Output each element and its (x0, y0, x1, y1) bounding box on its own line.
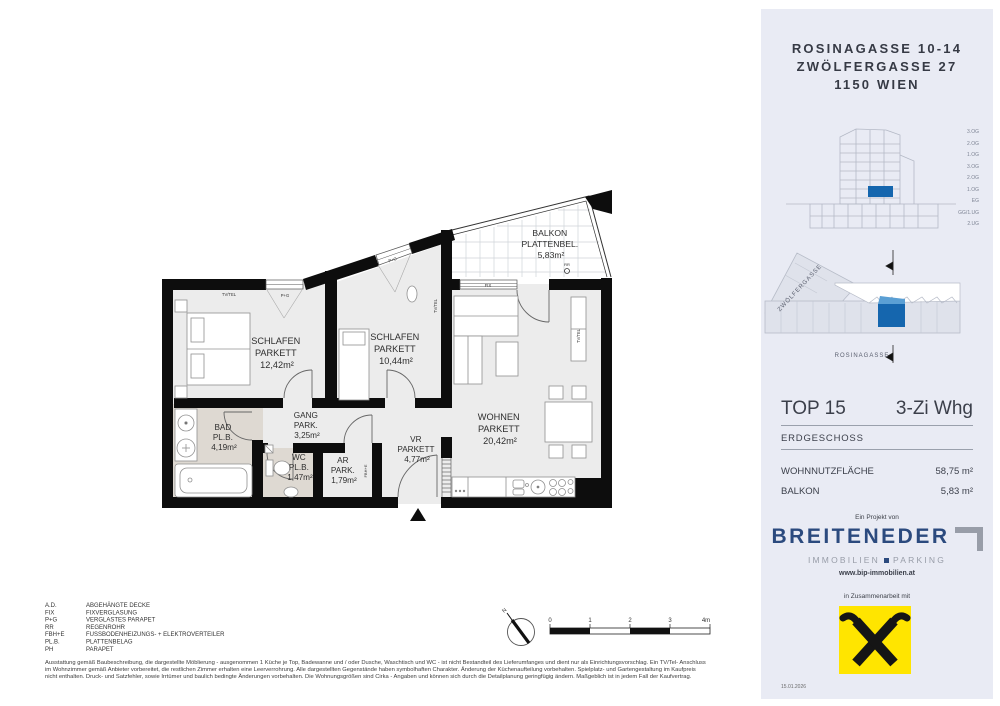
scale-tick-label: 2 (628, 618, 632, 624)
legend-abbr: A.D. (45, 603, 57, 609)
fbhe-annotation: FBH+E (363, 464, 368, 477)
cooperation-label: in Zusammenarbeit mit (761, 593, 993, 600)
scale-tick-label: 4m (702, 618, 710, 624)
floor-label: 1.OG (958, 150, 979, 162)
metric-value: 5,83 m² (941, 482, 973, 502)
legend-label: VERGLASTES PARAPET (86, 618, 156, 624)
address-line: 1150 WIEN (761, 76, 993, 94)
room-label-wohnen: WOHNEN PARKETT 20,42m² (478, 412, 522, 446)
metric-row: BALKON 5,83 m² (781, 482, 973, 502)
floor-label: EG (958, 196, 979, 208)
floor-label: 2.OG (958, 173, 979, 185)
fix-annotation: FIX (485, 283, 492, 288)
legend-abbr: P+G (45, 618, 58, 624)
tvtel-annotation: TV/TEL (222, 292, 237, 297)
unit-info: TOP 15 3-Zi Whg ERDGESCHOSS WOHNNUTZFLÄC… (781, 398, 973, 502)
legend-abbr: PH (45, 647, 53, 653)
legend-abbr: FIX (45, 610, 54, 616)
brand-website: www.bip-immobilien.at (761, 570, 993, 577)
floorplan-drawing: SCHLAFEN PARKETT 12,42m² SCHLAFEN PARKET… (0, 0, 760, 706)
room-label-gang: GANG PARK. 3,25m² (294, 411, 320, 440)
floor-label: 2.OG (958, 139, 979, 151)
brand-name: BREITENEDER (771, 526, 949, 548)
floor-label: GG/1.UG (958, 208, 979, 220)
room-label-bad: BAD PL.B. 4,19m² (211, 423, 237, 452)
divider (781, 425, 973, 426)
legend-label: REGENROHR (86, 625, 126, 631)
project-sidebar: ROSINAGASSE 10-14 ZWÖLFERGASSE 27 1150 W… (761, 9, 993, 699)
street-label-rosinagasse: ROSINAGASSE (835, 353, 890, 359)
disclaimer-line: im Wohnzimmer gemäß Anbieter vorbereitet… (45, 666, 696, 673)
disclaimer-line: nicht enthalten. Druck- und Satzfehler, … (45, 673, 692, 680)
unit-type: 3-Zi Whg (896, 398, 973, 420)
brand-square-icon (884, 558, 889, 563)
legend-label: PARAPET (86, 647, 114, 653)
floor-label: 2.UG (958, 219, 979, 231)
metric-label: BALKON (781, 482, 820, 502)
brand-subtitle: IMMOBILIENPARKING (761, 555, 993, 565)
brand-logo: BREITENEDER (761, 526, 993, 551)
highlighted-floor (868, 186, 893, 197)
floor-labels: 3.OG 2.OG 1.OG 3.OG 2.OG 1.OG EG GG/1.UG… (958, 127, 979, 231)
entrance-arrow-icon (410, 508, 426, 521)
floorplan-sheet: SCHLAFEN PARKETT 12,42m² SCHLAFEN PARKET… (0, 0, 1000, 706)
brand-sub-left: IMMOBILIEN (808, 555, 880, 565)
disclaimer: Ausstattung gemäß Baubeschreibung, die d… (45, 660, 706, 680)
legend-label: FIXVERGLASUNG (86, 610, 137, 616)
building-section-diagram (786, 127, 956, 239)
scale-bar: 0 1 2 3 4m (548, 618, 710, 634)
disclaimer-line: Ausstattung gemäß Baubeschreibung, die d… (45, 660, 706, 666)
project-address: ROSINAGASSE 10-14 ZWÖLFERGASSE 27 1150 W… (761, 40, 993, 94)
floor-label: 1.OG (958, 185, 979, 197)
tvtel-annotation: TV/TEL (576, 328, 581, 343)
scale-tick-label: 1 (588, 618, 592, 624)
legend-abbr: FBH+E (45, 632, 65, 638)
legend-label: ABGEHÄNGTE DECKE (86, 602, 150, 609)
pg-annotation: P+G (281, 293, 290, 298)
brand-corner-icon (955, 527, 983, 551)
floor-label: 3.OG (958, 162, 979, 174)
abbreviation-legend: A.D. ABGEHÄNGTE DECKE FIX FIXVERGLASUNG … (45, 602, 225, 653)
plan-date: 15.01.2026 (781, 684, 806, 690)
divider (781, 449, 973, 450)
metric-label: WOHNNUTZFLÄCHE (781, 462, 874, 482)
tvtel-annotation: TV/TEL (433, 298, 438, 313)
highlighted-unit (878, 304, 905, 327)
metric-value: 58,75 m² (936, 462, 974, 482)
legend-abbr: RR (45, 625, 54, 631)
north-arrow: N (501, 607, 534, 645)
site-plan: ZWÖLFERGASSE ROSINAGASSE (761, 245, 993, 375)
scale-tick-label: 3 (668, 618, 672, 624)
scale-tick-label: 0 (548, 618, 552, 624)
brand-sub-right: PARKING (893, 555, 946, 565)
project-by-label: Ein Projekt von (761, 514, 993, 521)
unit-floor: ERDGESCHOSS (781, 433, 973, 444)
address-line: ZWÖLFERGASSE 27 (761, 58, 993, 76)
unit-number: TOP 15 (781, 398, 846, 420)
rr-annotation: RR (564, 262, 570, 267)
raiffeisen-logo-icon (839, 606, 911, 674)
legend-abbr: PL.B. (45, 640, 60, 646)
address-line: ROSINAGASSE 10-14 (761, 40, 993, 58)
legend-label: PLATTENBELAG (86, 640, 133, 646)
floor-label: 3.OG (958, 127, 979, 139)
metric-row: WOHNNUTZFLÄCHE 58,75 m² (781, 462, 973, 482)
legend-label: FUSSBODENHEIZUNGS- + ELEKTROVERTEILER (86, 632, 225, 638)
